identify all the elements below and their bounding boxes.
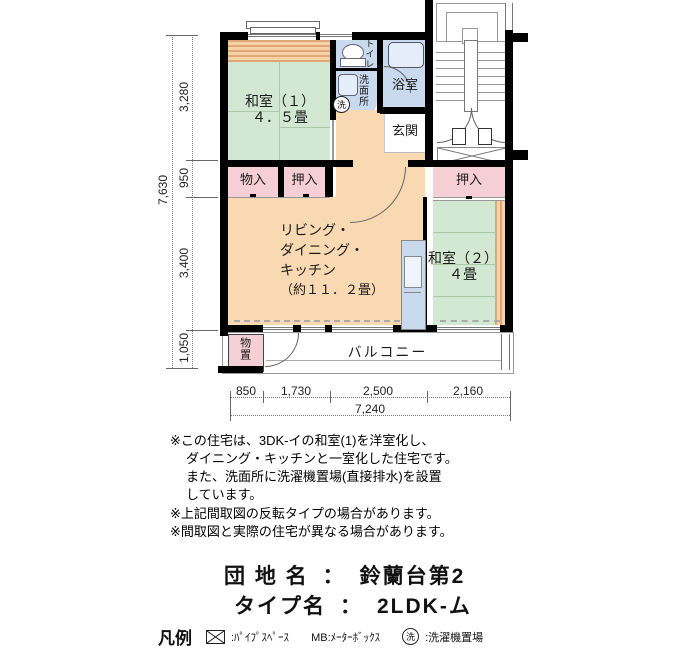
ldk-label-line2: ダイニング・ <box>280 240 384 260</box>
window-inner-sash <box>250 27 316 34</box>
dim-bottom-seg1: 850 <box>226 384 266 398</box>
washitsu2-name: 和室（２） <box>428 250 498 266</box>
wall-stub <box>513 150 528 160</box>
step-edge <box>440 320 500 322</box>
tatami-line <box>433 296 495 297</box>
dim-bottom-seg4: 2,160 <box>438 384 498 398</box>
wall-segment <box>425 0 433 167</box>
oshiire2-label: 押入 <box>433 173 505 188</box>
sliding-glass-door <box>332 325 393 332</box>
wall-segment <box>218 366 263 373</box>
wall-segment <box>293 325 301 332</box>
sliding-door-line <box>332 120 334 162</box>
stair-upper-wall-line <box>505 3 513 30</box>
type-name-value: 2LDK-ム <box>377 590 472 620</box>
wall-segment <box>220 32 228 336</box>
dim-tick <box>510 391 511 421</box>
dim-bottom-seg2: 1,730 <box>266 384 326 398</box>
wall-segment <box>220 160 353 167</box>
stair-rail <box>464 40 478 112</box>
wall-segment <box>425 160 513 167</box>
washitsu1-window-ledge <box>228 40 330 62</box>
washitsu1-size: ４．５畳 <box>230 109 330 125</box>
toilet-tank-icon <box>340 58 366 67</box>
dim-tick <box>330 391 331 403</box>
kitchen-sink-icon <box>404 256 422 288</box>
balcony-end-panel <box>501 334 510 370</box>
ldk-label-line4: （約１１．２畳） <box>280 280 384 300</box>
estate-name-row: 団 地 名 ： 鈴蘭台第2 <box>224 560 465 590</box>
dim-line-left-segments <box>192 35 193 368</box>
washing-machine-symbol-text: 洗 <box>337 98 346 111</box>
legend-wash-label: :洗濯機置場 <box>425 629 483 645</box>
dim-tick <box>427 391 428 403</box>
washbasin-icon <box>338 74 358 96</box>
wall-segment <box>377 40 383 113</box>
ldk-label-line1: リビング・ <box>280 220 384 240</box>
dim-bottom-seg3: 2,500 <box>348 384 408 398</box>
legend-pipe-label: :ﾊﾟｲﾌﾟｽﾍﾟｰｽ <box>231 629 289 645</box>
legend-title: 凡例 <box>158 624 192 649</box>
dim-line-left-total <box>172 35 173 368</box>
legend-mb-label: MB:ﾒｰﾀｰﾎﾞｯｸｽ <box>311 629 380 645</box>
balcony-door-opening <box>263 325 293 332</box>
fusuma-tick <box>303 194 309 197</box>
legend-wash-icon: 洗 <box>402 628 419 645</box>
monoire-label: 物入 <box>228 173 278 188</box>
fusuma-tick <box>466 196 472 199</box>
sliding-glass-door <box>437 325 500 332</box>
monooki-label: 物置 <box>238 337 251 361</box>
estate-name-separator: ： <box>323 560 346 590</box>
window <box>301 325 325 332</box>
note-line5: ※上記間取図の反転タイプの場合があります。 <box>170 505 440 523</box>
genkan-label: 玄関 <box>384 124 426 139</box>
legend-wash-symbol-text: 洗 <box>406 630 415 643</box>
note-line2: ダイニング・キッチンと一室化した住宅です。 <box>186 450 458 468</box>
estate-name-label: 団 地 名 <box>224 560 309 590</box>
washroom-label: 洗面所 <box>356 74 368 107</box>
dim-left-seg2: 950 <box>177 150 191 206</box>
wall-stub <box>505 33 528 42</box>
room-line <box>433 200 508 201</box>
bathtub-icon <box>388 42 424 68</box>
type-name-separator: ： <box>340 590 363 620</box>
wall-segment <box>220 325 263 332</box>
washitsu1-label: 和室（１） ４．５畳 <box>230 93 330 125</box>
tatami-line <box>433 232 495 233</box>
dim-left-seg4: 1,050 <box>177 320 191 376</box>
note-line4: しています。 <box>186 486 262 504</box>
washitsu2-size: ４畳 <box>428 266 498 282</box>
washitsu2-label: 和室（２） ４畳 <box>428 250 498 282</box>
floor-plan-page: 洗 和室（１） ４．５畳 トイレ 洗面所 浴室 玄関 物入 押入 押入 リビング… <box>0 0 700 650</box>
tatami-line <box>279 127 330 128</box>
wall-segment <box>505 30 513 332</box>
dim-left-seg3: 3,400 <box>177 235 191 291</box>
step-edge <box>234 320 420 322</box>
kitchen-line <box>404 292 421 293</box>
ldk-label: リビング・ ダイニング・ キッチン （約１１．２畳） <box>280 220 384 300</box>
dim-left-seg1: 3,280 <box>177 69 191 125</box>
note-line6: ※間取図と実際の住宅が異なる場合があります。 <box>170 523 453 541</box>
pipe-space-icon <box>206 630 225 644</box>
fusuma-line <box>228 197 330 198</box>
dim-bottom-total: 7,240 <box>340 402 400 416</box>
balcony-line <box>266 360 505 361</box>
bath-label: 浴室 <box>384 78 426 93</box>
note-line1: ※この住宅は、3DK-イの和室(1)を洋室化し、 <box>170 432 434 450</box>
type-name-label: タイプ名 <box>234 590 326 620</box>
washitsu1-name: 和室（１） <box>230 93 330 109</box>
washing-machine-symbol: 洗 <box>333 96 350 113</box>
fusuma-tick <box>250 194 256 197</box>
ldk-label-line3: キッチン <box>280 260 384 280</box>
type-name-row: タイプ名 ： 2LDK-ム <box>234 590 472 620</box>
note-line3: また、洗面所に洗濯機置場(直接排水)を設置 <box>186 468 442 486</box>
wall-segment <box>325 160 333 197</box>
pipe-space-x-icon <box>207 631 224 643</box>
balcony-label: バルコニー <box>330 344 445 360</box>
entry-door-leaf-left <box>452 128 466 145</box>
window <box>320 32 352 40</box>
wall-segment <box>500 325 513 332</box>
wall-segment <box>325 325 332 332</box>
oshiire1-label: 押入 <box>284 173 325 188</box>
estate-name-value: 鈴蘭台第2 <box>360 560 466 590</box>
toilet-label: トイレ <box>364 39 374 69</box>
entry-door-leaf-right <box>478 128 492 145</box>
legend-row: 凡例 :ﾊﾟｲﾌﾟｽﾍﾟｰｽ MB:ﾒｰﾀｰﾎﾞｯｸｽ 洗 :洗濯機置場 <box>158 624 483 649</box>
dim-tick <box>166 35 198 36</box>
dim-left-total: 7,630 <box>156 162 170 218</box>
